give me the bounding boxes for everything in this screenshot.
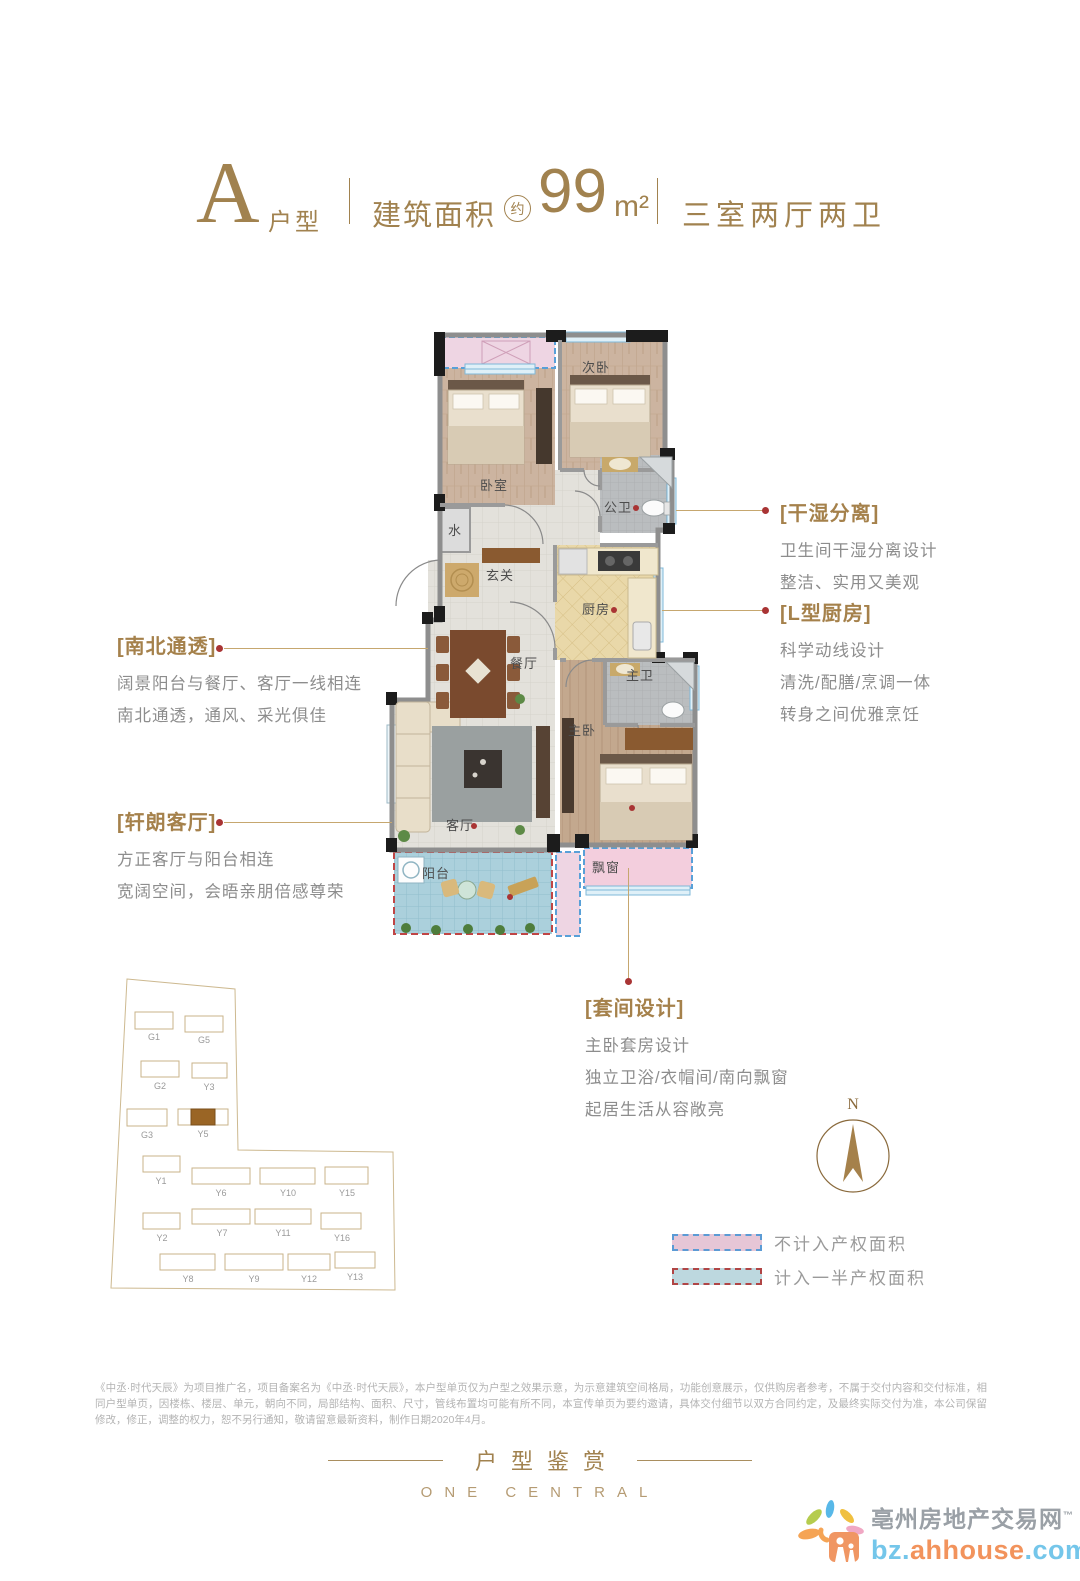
annotation-line: 南北通透，通风、采光俱佳: [117, 700, 362, 732]
room-label: 水: [448, 523, 462, 538]
legend-swatch-half: [672, 1268, 762, 1285]
svg-text:Y10: Y10: [280, 1188, 296, 1198]
bed-icon: [448, 380, 552, 464]
bed-icon: [570, 375, 650, 457]
annotation-line: 清洗/配膳/烹调一体: [780, 667, 931, 699]
svg-text:Y5: Y5: [197, 1129, 208, 1139]
annotation-line: 独立卫浴/衣帽间/南向飘窗: [585, 1062, 789, 1094]
annotation-line: 整洁、实用又美观: [780, 567, 938, 599]
legend-label: 计入一半产权面积: [774, 1264, 926, 1289]
annotation-suite: [套间设计] 主卧套房设计 独立卫浴/衣帽间/南向飘窗 起居生活从容敞亮: [585, 992, 789, 1126]
rooms-label: 三室两厅两卫: [682, 192, 886, 234]
leader-dot: [625, 978, 632, 985]
leader-line-dry-wet: [676, 510, 764, 511]
unit-type-label: 户型: [268, 202, 322, 237]
window-icon: [465, 364, 535, 374]
svg-text:Y8: Y8: [182, 1274, 193, 1284]
area-unit: m²: [614, 190, 649, 224]
annotation-line: 宽阔空间，会晤亲朋倍感尊荣: [117, 876, 345, 908]
annotation-line: 阔景阳台与餐厅、客厅一线相连: [117, 668, 362, 700]
svg-text:Y9: Y9: [248, 1274, 259, 1284]
annotation-living: [轩朗客厅] 方正客厅与阳台相连 宽阔空间，会晤亲朋倍感尊荣: [117, 806, 345, 908]
svg-text:G1: G1: [148, 1032, 160, 1042]
svg-text:Y3: Y3: [203, 1082, 214, 1092]
trademark: ™: [1063, 1510, 1074, 1521]
legend-item-excluded: 不计入产权面积: [672, 1230, 907, 1255]
compass: N: [808, 1096, 898, 1201]
header: A 户型 建筑面积 约 99 m² 三室两厅两卫: [0, 148, 1080, 248]
unit-type-letter: A: [196, 150, 260, 238]
svg-text:G2: G2: [154, 1081, 166, 1091]
window-icon: [586, 886, 690, 895]
leader-dot: [762, 607, 769, 614]
svg-text:Y12: Y12: [301, 1274, 317, 1284]
svg-text:Y2: Y2: [156, 1233, 167, 1243]
logo-burst-icon: [797, 1500, 865, 1564]
room-label: 公卫: [604, 500, 632, 515]
legend-label: 不计入产权面积: [774, 1230, 907, 1255]
annotation-line: 卫生间干湿分离设计: [780, 535, 938, 567]
footer-title: 户型鉴赏: [475, 1444, 619, 1476]
annotation-title: [L型厨房]: [780, 597, 931, 626]
svg-text:Y1: Y1: [155, 1176, 166, 1186]
logo-text: 亳州房地产交易网™ bz.ahhouse.com: [871, 1500, 1080, 1566]
room-label: 玄关: [486, 568, 514, 583]
compass-icon: [813, 1116, 893, 1196]
legend-item-half: 计入一半产权面积: [672, 1264, 926, 1289]
svg-text:G5: G5: [198, 1035, 210, 1045]
svg-text:G3: G3: [141, 1130, 153, 1140]
logo-site-name: 亳州房地产交易网™: [871, 1500, 1080, 1534]
annotation-line: 方正客厅与阳台相连: [117, 844, 345, 876]
room-label: 主卫: [626, 668, 654, 683]
svg-text:Y11: Y11: [275, 1228, 290, 1238]
legend-swatch-excluded: [672, 1234, 762, 1251]
footer-subtitle: ONE CENTRAL: [0, 1484, 1080, 1501]
svg-text:Y15: Y15: [339, 1188, 355, 1198]
area-value: 99: [538, 161, 607, 223]
annotation-kitchen: [L型厨房] 科学动线设计 清洗/配膳/烹调一体 转身之间优雅烹饪: [780, 597, 931, 731]
annotation-title: [套间设计]: [585, 992, 789, 1021]
footer-line-left: [328, 1460, 443, 1461]
area-label: 建筑面积: [372, 192, 496, 234]
flyer-page: A 户型 建筑面积 约 99 m² 三室两厅两卫: [0, 0, 1080, 1581]
leader-line-suite: [628, 868, 629, 978]
half-area-column: [556, 852, 580, 936]
annotation-title: [轩朗客厅]: [117, 806, 345, 835]
site-plan: G1 G5 G2 Y3 G3 Y5 Y1 Y6 Y10 Y15 Y2 Y7 Y1…: [95, 960, 415, 1300]
room-label: 客厅: [446, 818, 474, 833]
annotation-title: [干湿分离]: [780, 497, 938, 526]
svg-text:Y7: Y7: [216, 1228, 227, 1238]
header-divider: [657, 178, 658, 224]
room-label: 阳台: [422, 866, 450, 881]
annotation-north-south: [南北通透] 阔景阳台与餐厅、客厅一线相连 南北通透，通风、采光俱佳: [117, 630, 362, 732]
annotation-line: 转身之间优雅烹饪: [780, 699, 931, 731]
building-highlighted: [191, 1109, 215, 1125]
svg-text:Y16: Y16: [334, 1233, 350, 1243]
annotation-line: 主卧套房设计: [585, 1030, 789, 1062]
annotation-line: 科学动线设计: [780, 635, 931, 667]
room-label: 餐厅: [510, 656, 538, 671]
room-label: 次卧: [582, 360, 610, 375]
header-divider: [349, 178, 350, 224]
dining-table-icon: [436, 630, 520, 718]
floorplan: 卧室 次卧 公卫 水 玄关 厨房 餐厅 客厅 主卧 主卫 阳台 飘窗: [370, 330, 715, 945]
leader-dot: [762, 507, 769, 514]
annotation-title: [南北通透]: [117, 630, 362, 659]
svg-text:Y13: Y13: [347, 1272, 363, 1282]
logo-url[interactable]: bz.ahhouse.com: [871, 1535, 1080, 1566]
room-label: 主卧: [568, 723, 596, 738]
annotation-dry-wet: [干湿分离] 卫生间干湿分离设计 整洁、实用又美观: [780, 497, 938, 599]
site-logo[interactable]: 亳州房地产交易网™ bz.ahhouse.com: [797, 1500, 1080, 1566]
footer: 户型鉴赏: [0, 1444, 1080, 1476]
compass-north-label: N: [808, 1096, 898, 1114]
svg-text:Y6: Y6: [215, 1188, 226, 1198]
disclaimer-text: 《中丞·时代天辰》为项目推广名，项目备案名为《中丞·时代天辰》，本户型单页仅为户…: [95, 1380, 987, 1428]
annotation-line: 起居生活从容敞亮: [585, 1094, 789, 1126]
equipment-platform: [440, 337, 555, 368]
footer-line-right: [637, 1460, 752, 1461]
room-label: 飘窗: [592, 860, 620, 875]
room-label: 卧室: [480, 478, 508, 493]
approx-badge: 约: [504, 195, 531, 222]
leader-line-kitchen: [662, 610, 764, 611]
room-label: 厨房: [582, 602, 610, 617]
